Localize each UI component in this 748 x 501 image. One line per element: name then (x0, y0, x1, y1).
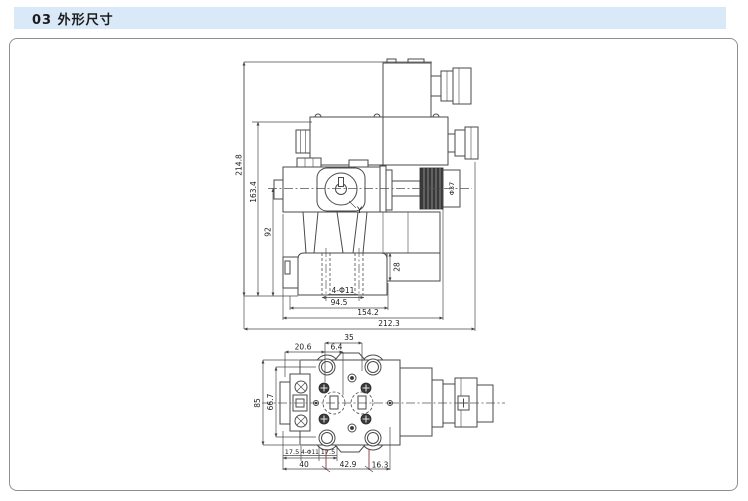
solenoid-coil (296, 114, 478, 165)
dim-edge-offset: 16.3 (372, 461, 389, 470)
adjustment-knob: Φ37 (380, 166, 460, 213)
dim-subplate-height: 28 (393, 262, 402, 272)
left-bracket (280, 374, 310, 431)
dimension-drawing: Y Φ37 (0, 0, 748, 501)
dim-hole-span-vertical: 66.7 (266, 393, 275, 410)
dim-body-width: 154.2 (357, 308, 379, 317)
top-view: 35 20.6 6.4 85 66.7 17.5 (253, 333, 505, 472)
dim-bolt-span: 94.5 (331, 298, 348, 307)
catalog-page: 03 外形尺寸 (0, 0, 748, 501)
connector-box (383, 59, 471, 117)
dim-base-width: 40 (299, 460, 309, 469)
solenoid-plan (400, 368, 493, 436)
dim-plan-mounting-holes: 4-Φ11 (301, 450, 319, 456)
valve-body: Y (274, 158, 383, 216)
dim-overall-width: 212.3 (378, 319, 400, 328)
dim-plate-height: 85 (253, 398, 262, 408)
dim-port-span: 35 (344, 333, 354, 342)
dim-height-centerline: 92 (264, 227, 273, 237)
dim-mounting-holes: 4-Φ11 (332, 286, 355, 295)
front-view: Y Φ37 (235, 59, 479, 331)
dim-pitch-left: 17.5 (285, 448, 299, 456)
dim-offset-mid: 6.4 (331, 343, 343, 352)
cable-gland-top (431, 68, 471, 104)
dim-pitch-right: 17.5 (321, 448, 335, 456)
dim-offset-left: 20.6 (295, 343, 312, 352)
cable-gland-right (448, 127, 478, 159)
dim-overall-height: 214.8 (235, 154, 244, 176)
mounting-base (283, 212, 440, 301)
dim-height-coil-top: 163.4 (249, 181, 258, 203)
dim-hole-span-horizontal: 42.9 (340, 460, 357, 469)
